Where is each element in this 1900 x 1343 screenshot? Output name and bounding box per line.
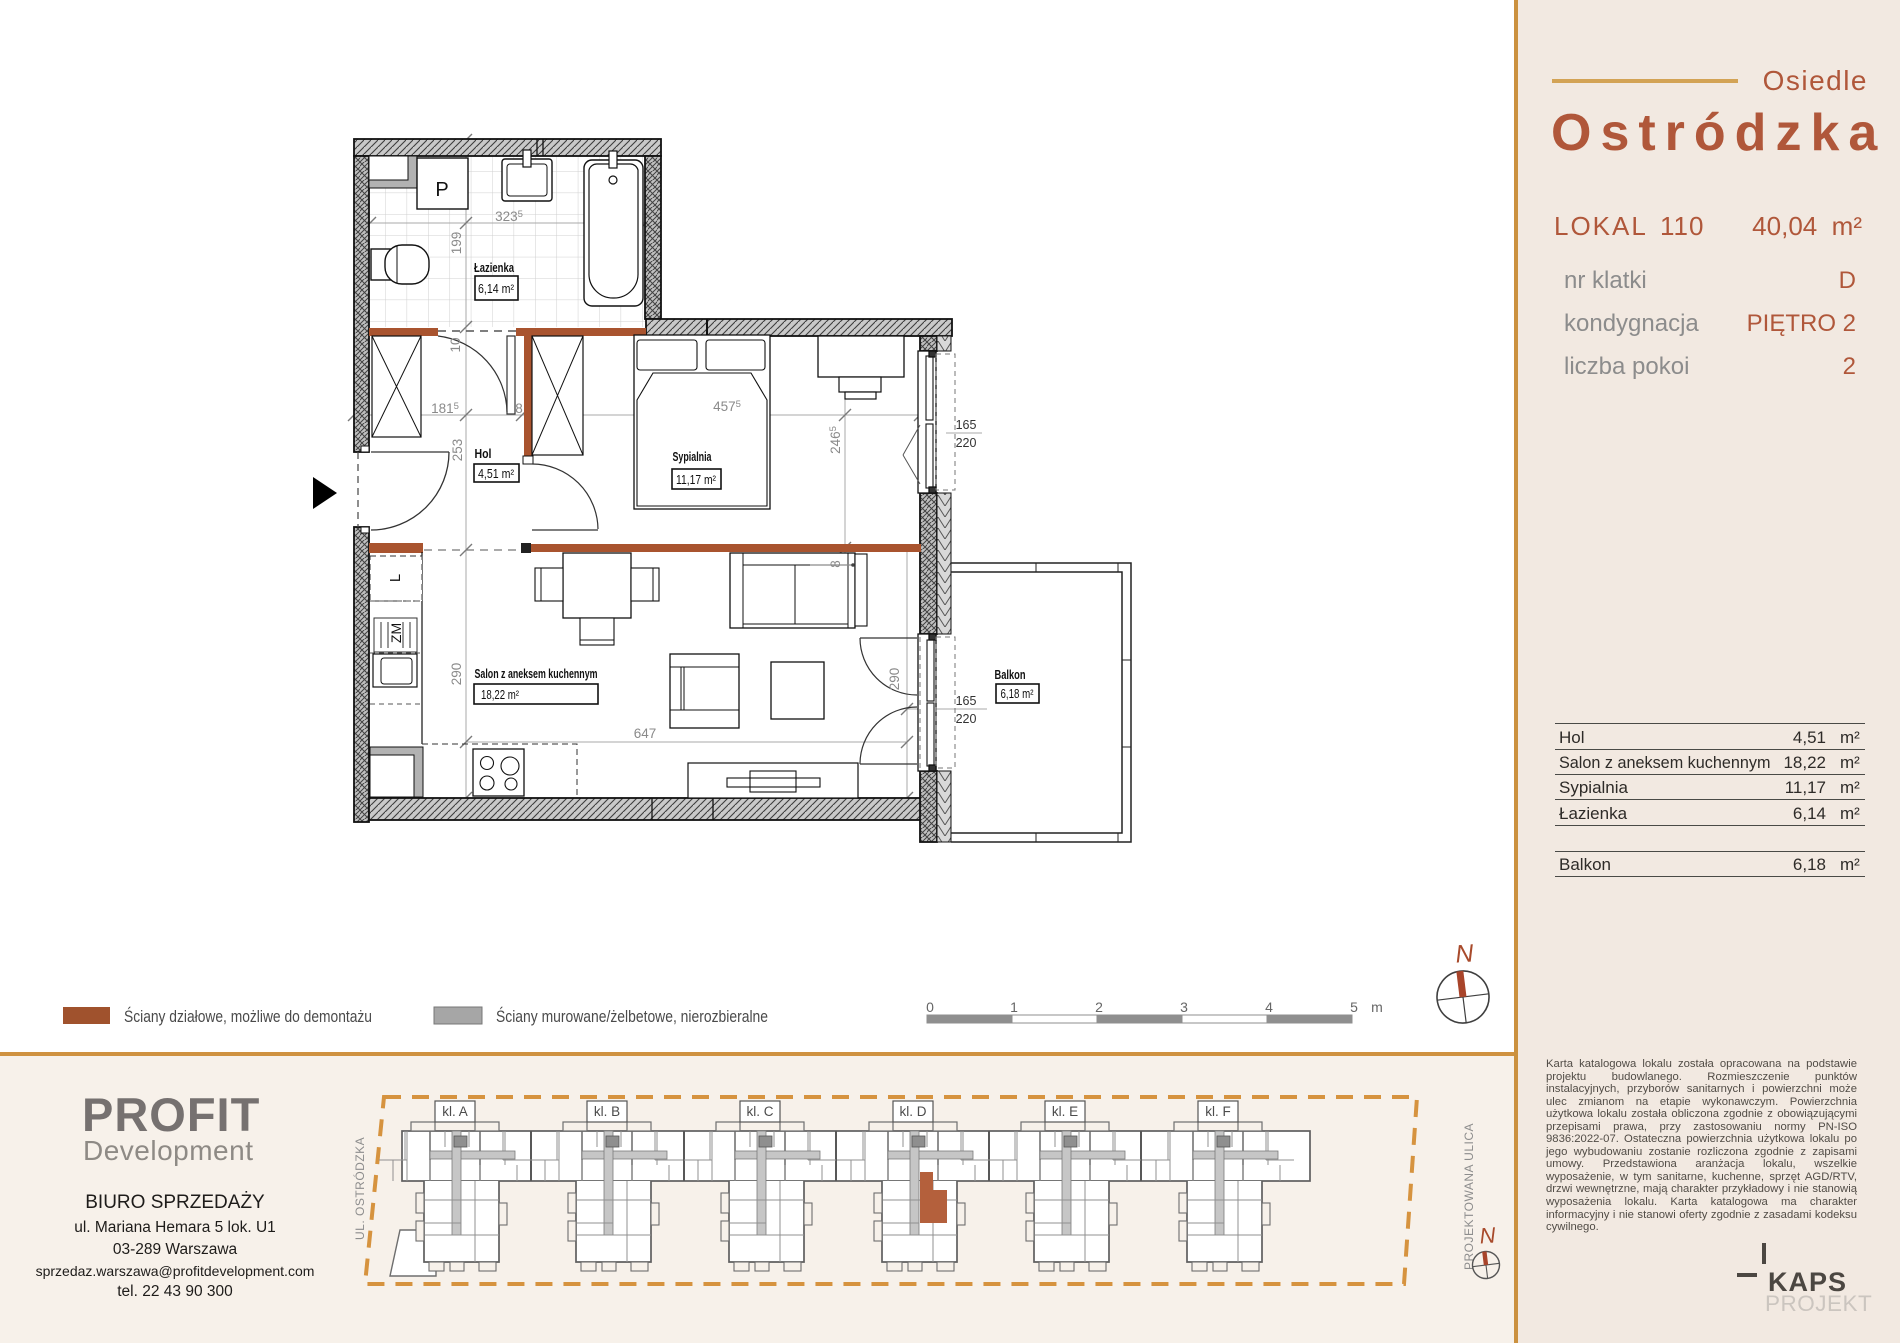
svg-text:6,14 m²: 6,14 m²	[478, 282, 514, 296]
svg-text:1815: 1815	[431, 401, 459, 416]
svg-text:290: 290	[449, 663, 464, 686]
svg-text:5: 5	[1350, 999, 1358, 1015]
svg-text:Hol: Hol	[475, 446, 492, 461]
svg-text:220: 220	[956, 436, 977, 450]
svg-text:3: 3	[1180, 999, 1188, 1015]
svg-text:PROJEKTOWANA ULICA: PROJEKTOWANA ULICA	[1462, 1123, 1476, 1270]
svg-text:Balkon: Balkon	[995, 667, 1026, 682]
svg-text:P: P	[435, 179, 448, 201]
svg-text:UL. OSTRÓDZKA: UL. OSTRÓDZKA	[352, 1137, 367, 1240]
svg-text:kl. A: kl. A	[442, 1104, 468, 1119]
svg-text:220: 220	[956, 712, 977, 726]
svg-text:10: 10	[448, 337, 463, 352]
svg-text:647: 647	[634, 726, 657, 741]
svg-text:1: 1	[1010, 999, 1018, 1015]
svg-text:Sypialnia: Sypialnia	[673, 449, 713, 464]
svg-text:290: 290	[887, 668, 902, 691]
svg-text:ZM: ZM	[388, 623, 404, 643]
svg-text:18,22 m²: 18,22 m²	[481, 688, 519, 702]
svg-text:11,17 m²: 11,17 m²	[676, 473, 716, 487]
svg-text:Ściany murowane/żelbetowe, nie: Ściany murowane/żelbetowe, nierozbieraln…	[496, 1007, 768, 1026]
svg-text:N: N	[1479, 1222, 1497, 1248]
svg-text:253: 253	[450, 439, 465, 462]
svg-text:Salon z aneksem kuchennym: Salon z aneksem kuchennym	[475, 666, 598, 681]
svg-text:L: L	[388, 574, 404, 582]
svg-text:6,18 m²: 6,18 m²	[1001, 687, 1034, 701]
svg-text:kl. F: kl. F	[1205, 1104, 1231, 1119]
svg-text:2: 2	[1095, 999, 1103, 1015]
svg-text:2465: 2465	[828, 426, 843, 454]
svg-text:m: m	[1371, 999, 1383, 1015]
svg-text:8: 8	[828, 560, 843, 568]
svg-text:kl. C: kl. C	[747, 1104, 774, 1119]
svg-text:kl. B: kl. B	[594, 1104, 620, 1119]
svg-text:kl. E: kl. E	[1052, 1104, 1078, 1119]
svg-text:199: 199	[449, 232, 464, 255]
svg-text:Ściany działowe, możliwe do de: Ściany działowe, możliwe do demontażu	[124, 1007, 372, 1026]
svg-text:N: N	[1454, 939, 1475, 968]
svg-text:kl. D: kl. D	[900, 1104, 927, 1119]
svg-text:Łazienka: Łazienka	[474, 260, 515, 275]
svg-text:165: 165	[956, 418, 977, 432]
svg-text:4: 4	[1265, 999, 1273, 1015]
svg-text:4,51 m²: 4,51 m²	[478, 467, 514, 481]
svg-text:8: 8	[515, 401, 523, 416]
svg-text:0: 0	[926, 999, 934, 1015]
svg-text:165: 165	[956, 694, 977, 708]
